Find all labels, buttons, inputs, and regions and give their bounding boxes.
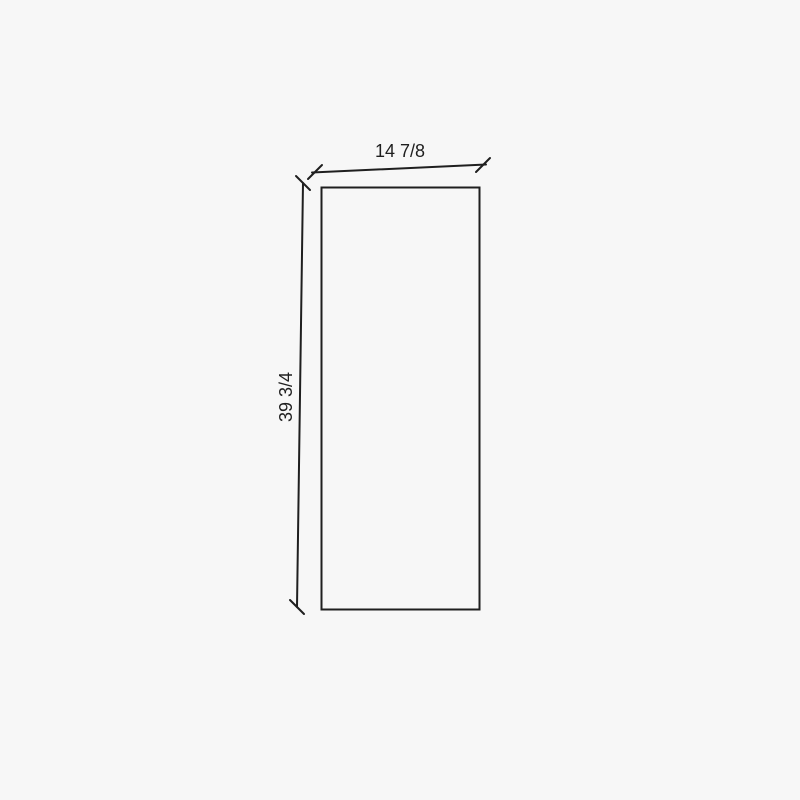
drawing-canvas: 14 7/8 39 3/4 [0,0,800,800]
width-dimension-line [312,165,486,173]
panel-drawing [0,0,800,800]
height-dimension-label: 39 3/4 [276,372,298,422]
height-dimension-line [297,183,303,607]
panel-outline [322,188,480,610]
width-dimension-label: 14 7/8 [375,141,425,163]
